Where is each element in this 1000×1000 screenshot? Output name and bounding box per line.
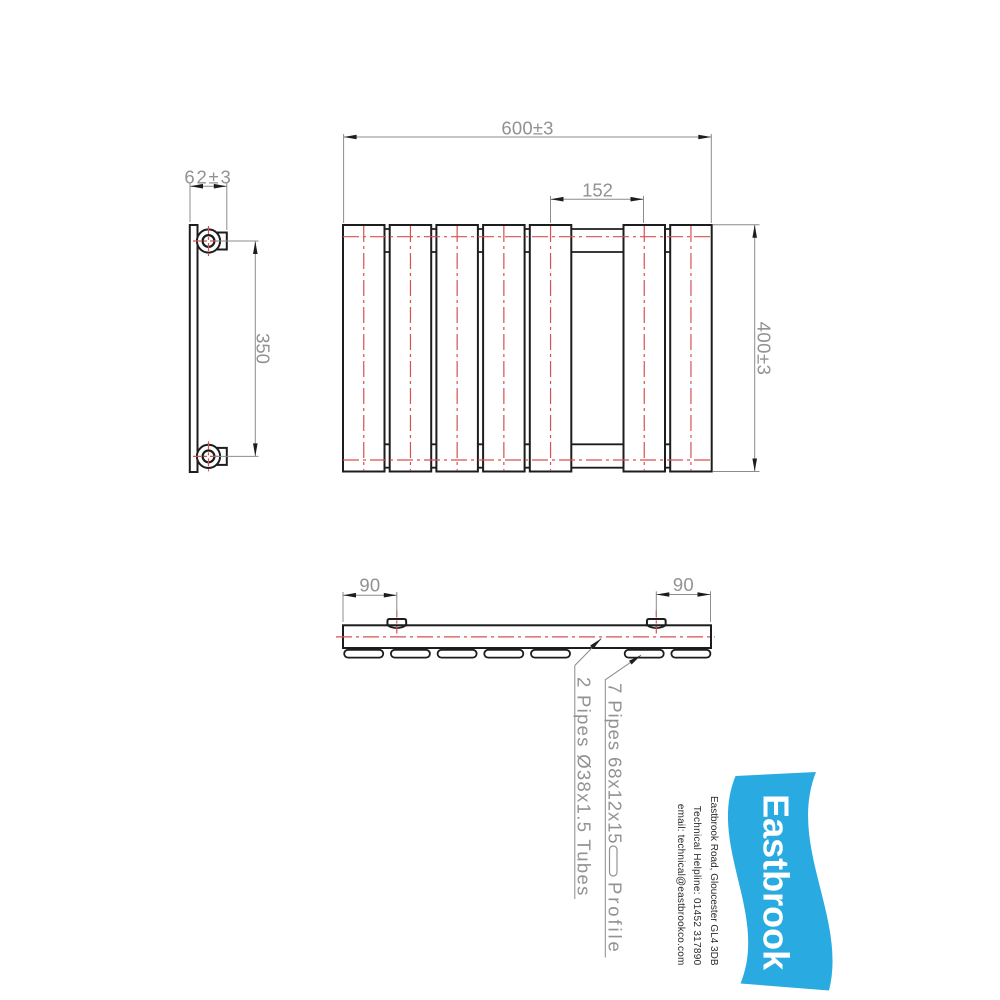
- svg-text:email: technical@eastbrookco.c: email: technical@eastbrookco.com: [675, 804, 686, 966]
- svg-text:90: 90: [673, 574, 694, 595]
- svg-text:90: 90: [359, 575, 380, 596]
- svg-text:62±3: 62±3: [184, 167, 232, 188]
- svg-text:Technical Helpline: 01452 3178: Technical Helpline: 01452 317890: [691, 806, 702, 966]
- svg-text:600±3: 600±3: [501, 118, 553, 139]
- svg-text:350: 350: [252, 333, 273, 364]
- svg-text:7 Pipes 68x12x15: 7 Pipes 68x12x15: [605, 683, 626, 844]
- svg-text:400±3: 400±3: [753, 322, 774, 376]
- svg-text:2 Pipes Ø38x1.5 Tubes: 2 Pipes Ø38x1.5 Tubes: [574, 677, 595, 897]
- svg-text:Eastbrook: Eastbrook: [755, 794, 796, 971]
- svg-text:Eastbrook Road, Gloucester GL4: Eastbrook Road, Gloucester GL4 3DB: [708, 796, 719, 966]
- svg-text:152: 152: [582, 180, 613, 201]
- svg-text:Profile: Profile: [605, 882, 626, 955]
